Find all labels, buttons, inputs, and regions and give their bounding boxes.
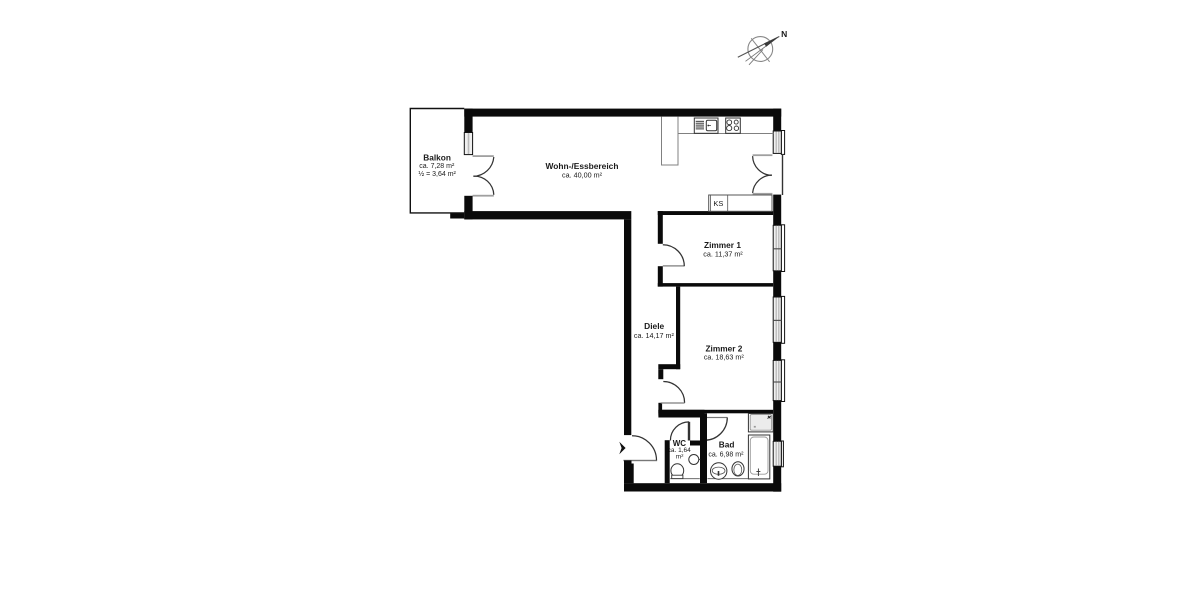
svg-text:ca. 40,00 m²: ca. 40,00 m² xyxy=(562,171,603,180)
svg-text:ca. 7,28 m²: ca. 7,28 m² xyxy=(419,163,455,170)
svg-text:ca. 14,17 m²: ca. 14,17 m² xyxy=(634,331,675,340)
svg-text:½ = 3,64 m²: ½ = 3,64 m² xyxy=(418,170,456,178)
svg-text:Wohn-/Essbereich: Wohn-/Essbereich xyxy=(546,161,619,171)
svg-text:Bad: Bad xyxy=(719,440,735,450)
svg-text:ca. 6,98 m²: ca. 6,98 m² xyxy=(708,452,744,459)
svg-text:N: N xyxy=(781,29,787,39)
svg-text:Zimmer 1: Zimmer 1 xyxy=(704,240,741,250)
svg-text:Balkon: Balkon xyxy=(423,152,451,162)
svg-text:m²: m² xyxy=(676,453,684,460)
svg-text:Diele: Diele xyxy=(644,321,664,331)
svg-text:ca. 11,37 m²: ca. 11,37 m² xyxy=(703,250,743,259)
svg-text:KS: KS xyxy=(713,199,723,208)
svg-text:ca. 18,63 m²: ca. 18,63 m² xyxy=(704,353,745,362)
